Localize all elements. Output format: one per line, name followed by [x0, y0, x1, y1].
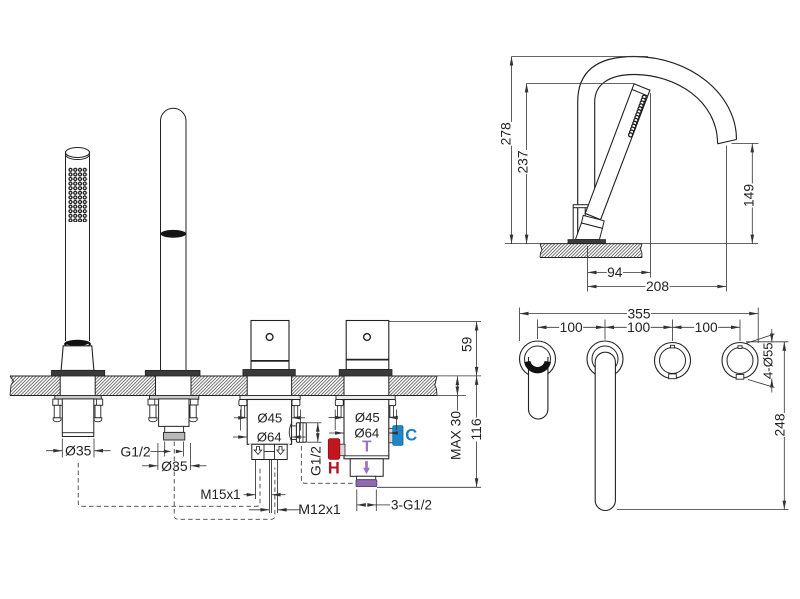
svg-text:149: 149 [742, 184, 757, 207]
svg-text:MAX 30: MAX 30 [449, 411, 464, 460]
svg-text:Ø45: Ø45 [355, 410, 380, 425]
svg-text:M12x1: M12x1 [298, 502, 341, 518]
svg-text:4-Ø55: 4-Ø55 [761, 342, 776, 379]
svg-text:G1/2: G1/2 [309, 446, 324, 476]
svg-text:248: 248 [773, 413, 788, 436]
svg-text:94: 94 [607, 265, 623, 280]
svg-text:Ø45: Ø45 [257, 410, 282, 425]
svg-text:M15x1: M15x1 [200, 487, 240, 502]
svg-text:Ø64: Ø64 [257, 430, 282, 445]
svg-text:C: C [405, 427, 417, 445]
svg-text:Ø64: Ø64 [354, 426, 379, 441]
svg-text:237: 237 [516, 150, 531, 173]
svg-text:H: H [328, 459, 340, 477]
svg-text:278: 278 [498, 122, 513, 145]
svg-text:100: 100 [627, 320, 650, 335]
svg-text:59: 59 [460, 336, 475, 352]
svg-text:G1/2: G1/2 [120, 443, 151, 459]
svg-text:3-G1/2: 3-G1/2 [391, 497, 432, 512]
svg-text:T: T [362, 439, 372, 456]
svg-text:100: 100 [695, 320, 718, 335]
svg-text:116: 116 [469, 418, 484, 440]
svg-text:208: 208 [646, 279, 669, 294]
svg-text:100: 100 [560, 320, 583, 335]
svg-text:Ø35: Ø35 [65, 443, 92, 459]
